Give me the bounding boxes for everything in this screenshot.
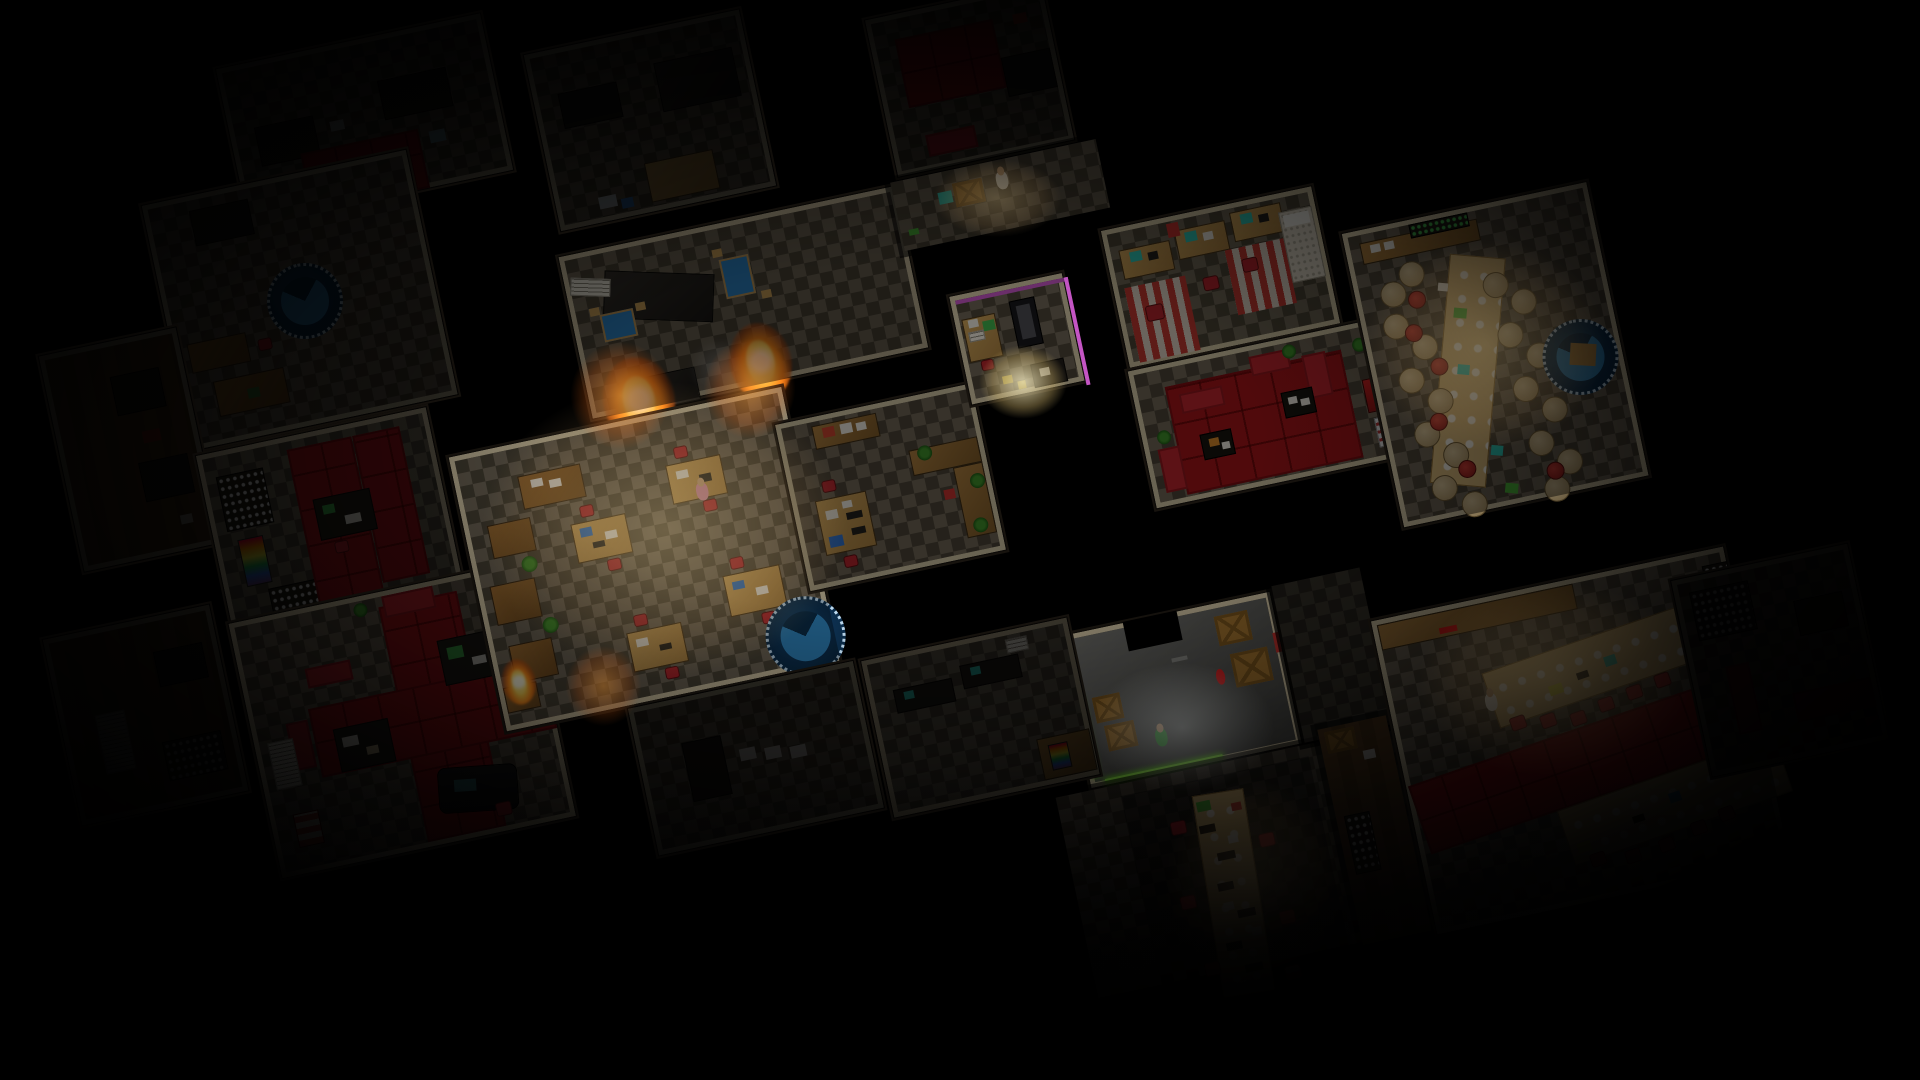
dark-desk (110, 367, 167, 417)
small-object (428, 128, 446, 143)
small-object (1166, 222, 1181, 238)
red-chair (1202, 275, 1221, 292)
red-chair (579, 504, 595, 519)
room-shadow (522, 8, 777, 232)
red-sofa (1792, 677, 1876, 723)
red-chair (1624, 847, 1644, 865)
dark-desk (893, 678, 957, 714)
potted-plant (520, 555, 539, 574)
small-object (764, 745, 782, 760)
small-object (1363, 748, 1377, 759)
dark-desk (1001, 48, 1058, 98)
small-object (1017, 380, 1026, 389)
round-stool (1459, 489, 1490, 520)
rainbow-poster (237, 535, 272, 587)
small-object (1569, 343, 1596, 366)
red-chair (1179, 894, 1198, 911)
red-chair (821, 479, 837, 494)
red-chair (1169, 819, 1188, 836)
dark-bar (653, 47, 742, 113)
small-object (1002, 375, 1013, 385)
red-chair (1284, 964, 1303, 981)
red-chair (843, 554, 859, 569)
wooden-crate (1214, 610, 1253, 646)
desk (1118, 240, 1175, 280)
center-office (775, 383, 1006, 591)
dark-desk (1793, 591, 1849, 637)
character[interactable] (994, 170, 1009, 190)
dark-desk (189, 199, 255, 247)
small-object (1171, 655, 1187, 662)
dark-desk (681, 735, 733, 802)
small-object (943, 488, 956, 500)
dark-office (861, 618, 1100, 818)
dark-desk (153, 642, 209, 688)
cafeteria (1342, 182, 1649, 527)
desk (1173, 220, 1230, 260)
pool-table (599, 308, 638, 342)
southwest-dark-room (43, 605, 249, 826)
small-object (1438, 283, 1449, 292)
bookshelf (1344, 811, 1382, 875)
small-object (789, 744, 807, 759)
cabinet (186, 332, 251, 374)
cabinet (487, 517, 537, 559)
round-stool (1511, 374, 1542, 405)
pink-music-room (949, 273, 1084, 405)
bookshelf (162, 730, 229, 782)
small-object (1012, 12, 1028, 25)
small-object (711, 248, 722, 258)
desk (626, 622, 689, 673)
round-stool (1508, 286, 1539, 317)
blue-circle-marker[interactable] (260, 256, 350, 346)
red-chair (673, 445, 689, 460)
red-chair (1258, 831, 1277, 848)
bookshelf (1689, 580, 1758, 641)
dark-desk (377, 67, 454, 121)
round-stool (1526, 428, 1557, 459)
top-rooms (524, 9, 777, 231)
small-object (937, 190, 953, 205)
wooden-crate (952, 178, 986, 208)
desk (1229, 202, 1286, 242)
round-stool (1539, 394, 1570, 425)
small-object (180, 513, 194, 524)
character[interactable] (1154, 727, 1169, 747)
paper-sign (1005, 635, 1029, 653)
small-object (329, 119, 345, 132)
dark-desk (959, 653, 1023, 689)
hazard-crate (293, 809, 326, 848)
paper-sign (95, 710, 137, 775)
potted-plant (541, 615, 560, 634)
small-object (621, 197, 635, 209)
wall-notch (1123, 611, 1183, 652)
red-sofa (1725, 662, 1763, 735)
round-stool (1396, 365, 1427, 396)
wooden-crate (1324, 726, 1358, 754)
small-object (1457, 364, 1470, 375)
small-object (1453, 307, 1467, 318)
red-chair (1278, 909, 1297, 926)
red-chair (495, 800, 514, 817)
small-object (598, 194, 618, 209)
fire-extinguisher (1215, 668, 1227, 686)
potted-plant (352, 602, 369, 619)
bookshelf (216, 467, 275, 532)
wooden-crate (1230, 647, 1274, 688)
game-viewport[interactable] (0, 0, 1920, 1080)
red-chair (1657, 835, 1677, 853)
wooden-crate (1104, 720, 1139, 752)
red-chair (664, 665, 680, 680)
wooden-crate (1092, 692, 1125, 723)
red-chair (1596, 695, 1616, 713)
red-sofa (305, 660, 354, 689)
wood-counter (1377, 584, 1578, 651)
small-object (1505, 483, 1519, 494)
small-object (454, 778, 477, 792)
dark-desk (138, 453, 195, 503)
cabinet (489, 577, 542, 626)
red-chair (729, 556, 745, 571)
small-object (908, 228, 919, 236)
small-object (1064, 277, 1091, 385)
potted-plant (1156, 429, 1173, 446)
dark-desk (557, 81, 623, 129)
small-object (142, 428, 162, 443)
small-object (1491, 445, 1504, 456)
paper-sign (570, 278, 611, 297)
desk (644, 149, 721, 203)
room-shadow (42, 603, 250, 827)
small-object (739, 746, 757, 761)
building-world (0, 0, 1920, 1080)
small-object (1272, 632, 1282, 653)
red-sofa (925, 125, 978, 157)
desk (570, 513, 633, 564)
room-shadow (860, 616, 1101, 819)
pool-room (558, 186, 928, 419)
red-chair (606, 557, 622, 572)
red-carpet (895, 19, 1007, 108)
red-stool (1406, 289, 1427, 310)
red-chair (633, 613, 649, 628)
pool-table (719, 254, 757, 299)
small-object (761, 289, 772, 299)
red-chair (1625, 683, 1645, 701)
red-chair (257, 337, 273, 352)
red-chair (980, 358, 995, 371)
